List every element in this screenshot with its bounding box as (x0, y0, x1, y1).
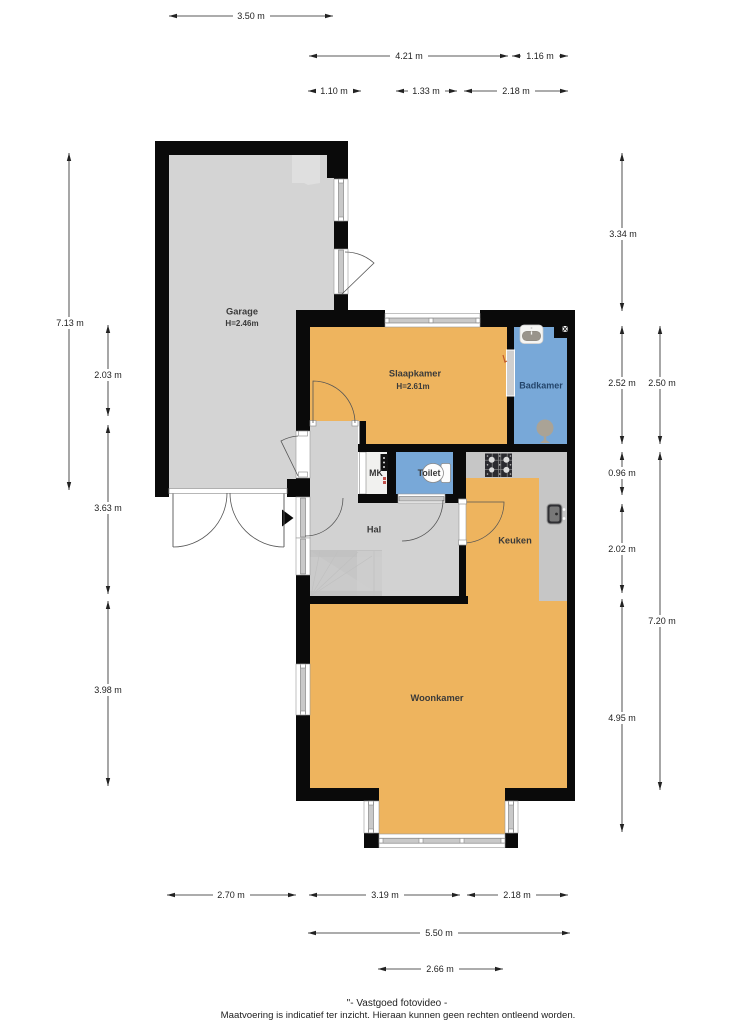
svg-text:2.18 m: 2.18 m (502, 86, 530, 96)
svg-text:Toilet: Toilet (418, 468, 441, 478)
svg-text:2.03 m: 2.03 m (94, 370, 122, 380)
svg-text:3.63 m: 3.63 m (94, 503, 122, 513)
svg-text:1.10 m: 1.10 m (320, 86, 348, 96)
svg-text:H=2.46m: H=2.46m (225, 319, 258, 328)
svg-text:Maatvoering is indicatief ter: Maatvoering is indicatief ter inzicht. H… (221, 1010, 576, 1021)
svg-text:H=2.61m: H=2.61m (396, 382, 429, 391)
svg-text:0.96 m: 0.96 m (608, 468, 636, 478)
svg-text:"- Vastgoed fotovideo -: "- Vastgoed fotovideo - (347, 998, 448, 1009)
svg-text:3.50 m: 3.50 m (237, 11, 265, 21)
svg-text:Badkamer: Badkamer (519, 381, 563, 391)
svg-text:1.16 m: 1.16 m (526, 51, 554, 61)
svg-text:4.95 m: 4.95 m (608, 713, 636, 723)
svg-text:2.66 m: 2.66 m (426, 964, 454, 974)
svg-text:Woonkamer: Woonkamer (410, 693, 463, 703)
svg-text:MK: MK (369, 468, 383, 478)
svg-text:5.50 m: 5.50 m (425, 928, 453, 938)
svg-text:2.52 m: 2.52 m (608, 378, 636, 388)
svg-text:Slaapkamer: Slaapkamer (389, 369, 442, 379)
svg-text:3.34 m: 3.34 m (609, 229, 637, 239)
svg-text:Garage: Garage (226, 307, 258, 317)
svg-text:2.18 m: 2.18 m (503, 890, 531, 900)
svg-text:1.33 m: 1.33 m (412, 86, 440, 96)
svg-text:7.13 m: 7.13 m (56, 318, 84, 328)
svg-text:3.19 m: 3.19 m (371, 890, 399, 900)
svg-text:Keuken: Keuken (498, 536, 532, 546)
svg-text:2.50 m: 2.50 m (648, 378, 676, 388)
svg-text:3.98 m: 3.98 m (94, 685, 122, 695)
svg-text:2.02 m: 2.02 m (608, 544, 636, 554)
svg-text:Hal: Hal (367, 525, 381, 535)
svg-text:4.21 m: 4.21 m (395, 51, 423, 61)
svg-text:2.70 m: 2.70 m (217, 890, 245, 900)
svg-text:7.20 m: 7.20 m (648, 616, 676, 626)
